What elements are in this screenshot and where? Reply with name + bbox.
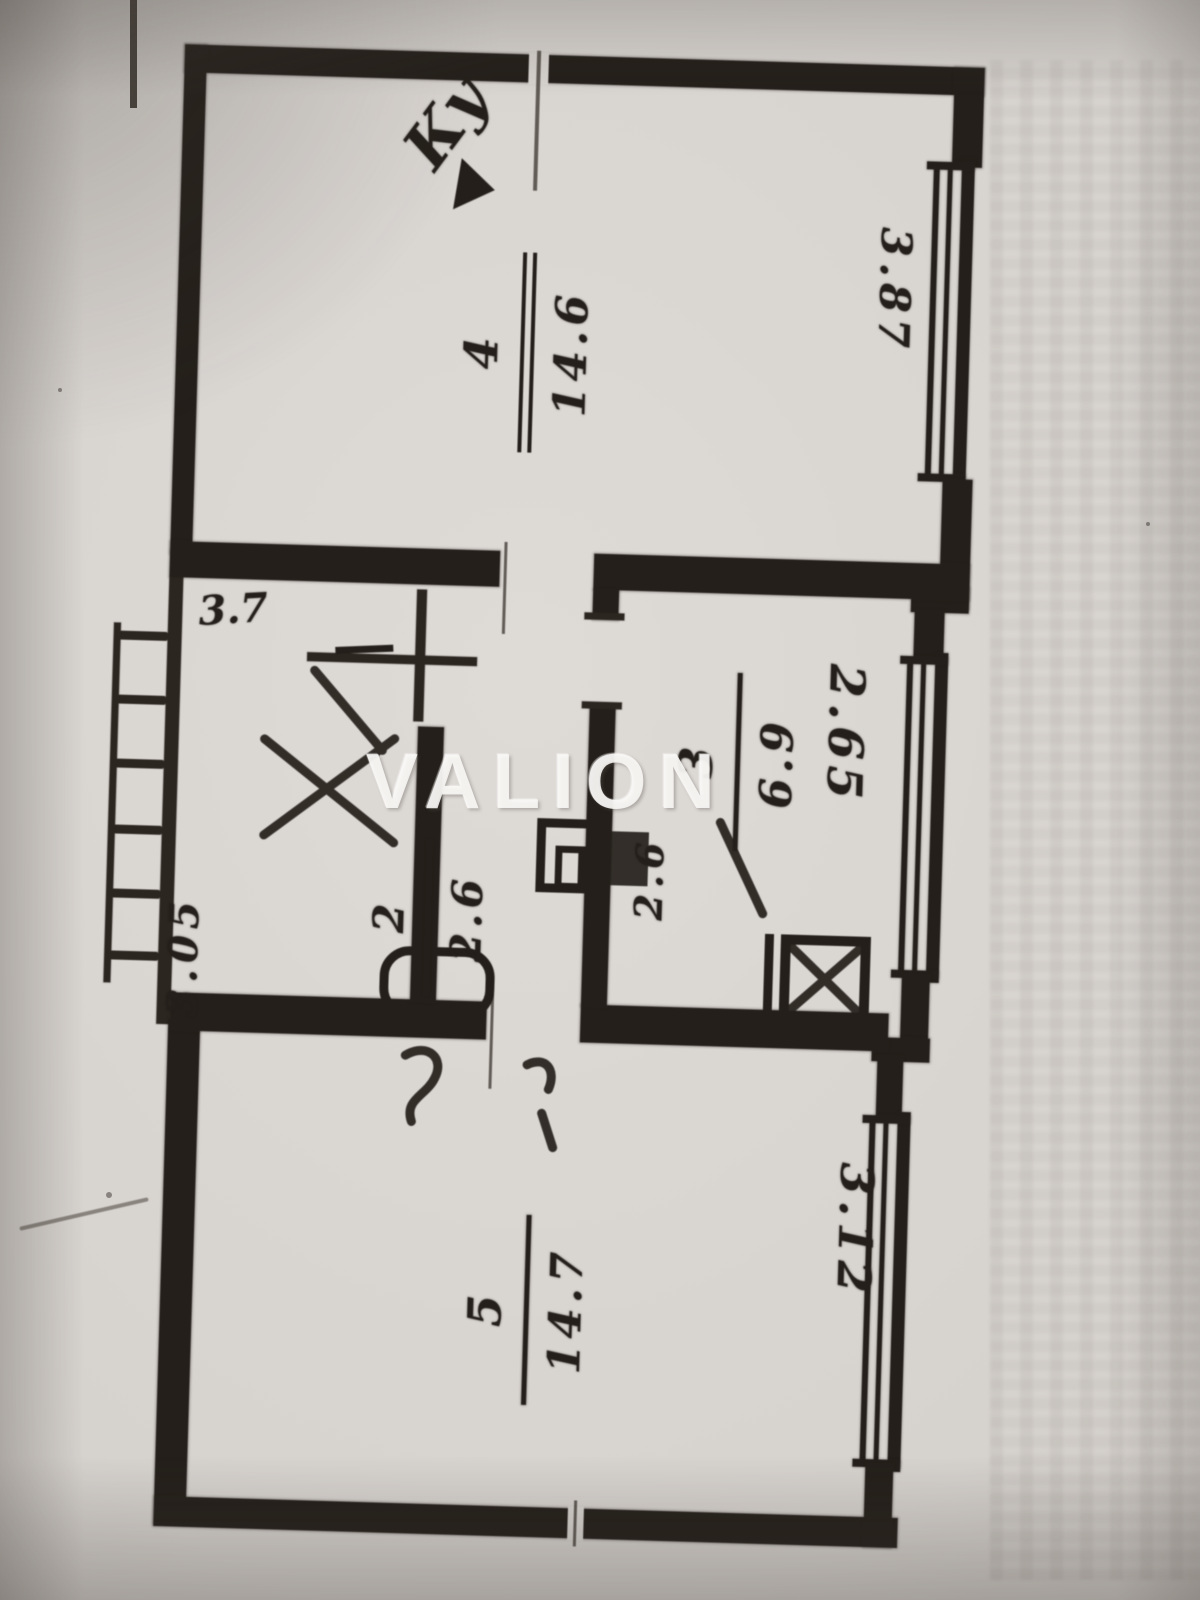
room-number: 4 [454, 332, 509, 371]
wall [952, 67, 985, 168]
stair-hatch-tick [116, 758, 164, 768]
door-jamb [584, 612, 624, 620]
dimension-bottom-window: 3.12 [824, 1162, 884, 1364]
wall [153, 1496, 898, 1548]
room-area: 2.6 [441, 874, 493, 963]
door-axis-line [502, 542, 508, 634]
stair-edge-line [103, 622, 121, 982]
window-kitchen [898, 656, 949, 979]
wall [593, 554, 970, 601]
vent-shaft-icon [778, 934, 871, 1025]
wall [170, 44, 207, 554]
stair-hatch-tick [120, 631, 168, 641]
room-number: 2 [364, 898, 414, 934]
corridor-underline [335, 645, 393, 654]
wall [184, 44, 984, 96]
partition [307, 652, 477, 666]
room-area: 14.6 [544, 290, 599, 419]
fraction-line [521, 1215, 532, 1405]
toilet-bowl-icon [554, 846, 585, 891]
room-number: 5 [457, 1289, 512, 1328]
vent-shaft-divider [762, 934, 774, 1022]
wall [876, 1055, 904, 1120]
dimension-corridor: 3.7 [197, 584, 269, 635]
dimension-top-window: 3.87 [866, 227, 921, 438]
paper-speck [106, 1192, 112, 1198]
window-top-room [925, 162, 975, 483]
door-jamb [582, 701, 622, 709]
wall [169, 541, 500, 587]
room-label-bathroom: 2 2.6 [362, 838, 494, 997]
stair-hatch-tick [114, 824, 162, 834]
wall [863, 1463, 893, 1548]
paper-speck [58, 388, 62, 392]
watermark: VALION [366, 736, 727, 827]
dimension-left-wall: 3.05 [158, 846, 210, 1017]
paper-edge-mark [130, 0, 137, 108]
stair-hatch-tick [118, 695, 166, 705]
entry-arrow-icon [453, 158, 499, 216]
stair-hatch-tick [112, 888, 160, 898]
scanned-floor-plan-photo: 4 14.6 3 6.9 2 2.6 5 14.7 3.87 2.65 3.12… [0, 0, 1200, 1600]
fraction-line [517, 252, 537, 452]
paper-speck [1146, 522, 1150, 526]
paper-crease [19, 1197, 149, 1231]
room-label-top-room: 4 14.6 [451, 250, 600, 454]
fraction-line [423, 840, 433, 995]
wall [153, 1019, 200, 1525]
stair-hatch-tick [110, 950, 158, 960]
dimension-kitchen-window: 2.65 [812, 663, 875, 905]
door-axis-line [488, 994, 494, 1089]
room-area: 14.7 [539, 1247, 594, 1376]
fraction-line [733, 673, 743, 851]
ink-bleedthrough-texture [990, 60, 1200, 1580]
room-area: 6.9 [751, 717, 805, 810]
room-label-bottom-room: 5 14.7 [455, 1213, 595, 1407]
